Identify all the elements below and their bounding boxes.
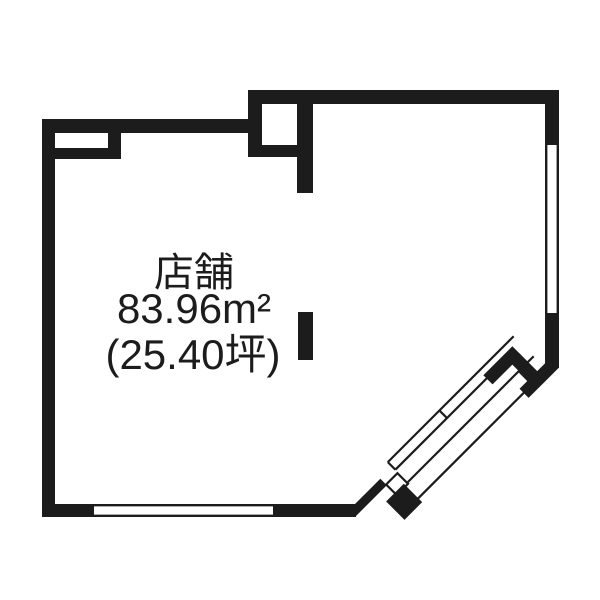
wall-pillar-mid [298,312,313,360]
door-frame-line-outer-d [415,384,532,501]
floorplan-canvas: 店舗 83.96m² (25.40坪) [0,0,600,600]
wall-bottom-left [42,504,94,517]
wall-right-upper [545,90,559,145]
wall-top [248,90,559,104]
door-frame-line-c [404,356,534,486]
wall-left [42,119,55,517]
wall-top-left [42,119,262,133]
room-area-tsubo: (25.40坪) [105,331,280,378]
wall-right-lower [545,313,559,368]
door-frame-line-outer-a [388,336,514,462]
room-area-sqm: 83.96m² [117,285,271,332]
door-track-end-cap [388,462,396,470]
door-panel-divider-upper [439,411,447,419]
wall-stub-top [297,104,313,193]
window-bottom [94,505,273,516]
floorplan: 店舗 83.96m² (25.40坪) [0,0,600,600]
wall-niche-left-opening [55,133,108,148]
wall-bottom-right [273,504,356,517]
sliding-door-diagonal [367,336,551,520]
wall-stub-diagonal-lower [355,479,387,517]
wall-duct-top-opening [262,104,297,145]
door-frame-line-b [395,377,488,470]
window-right [546,145,558,313]
